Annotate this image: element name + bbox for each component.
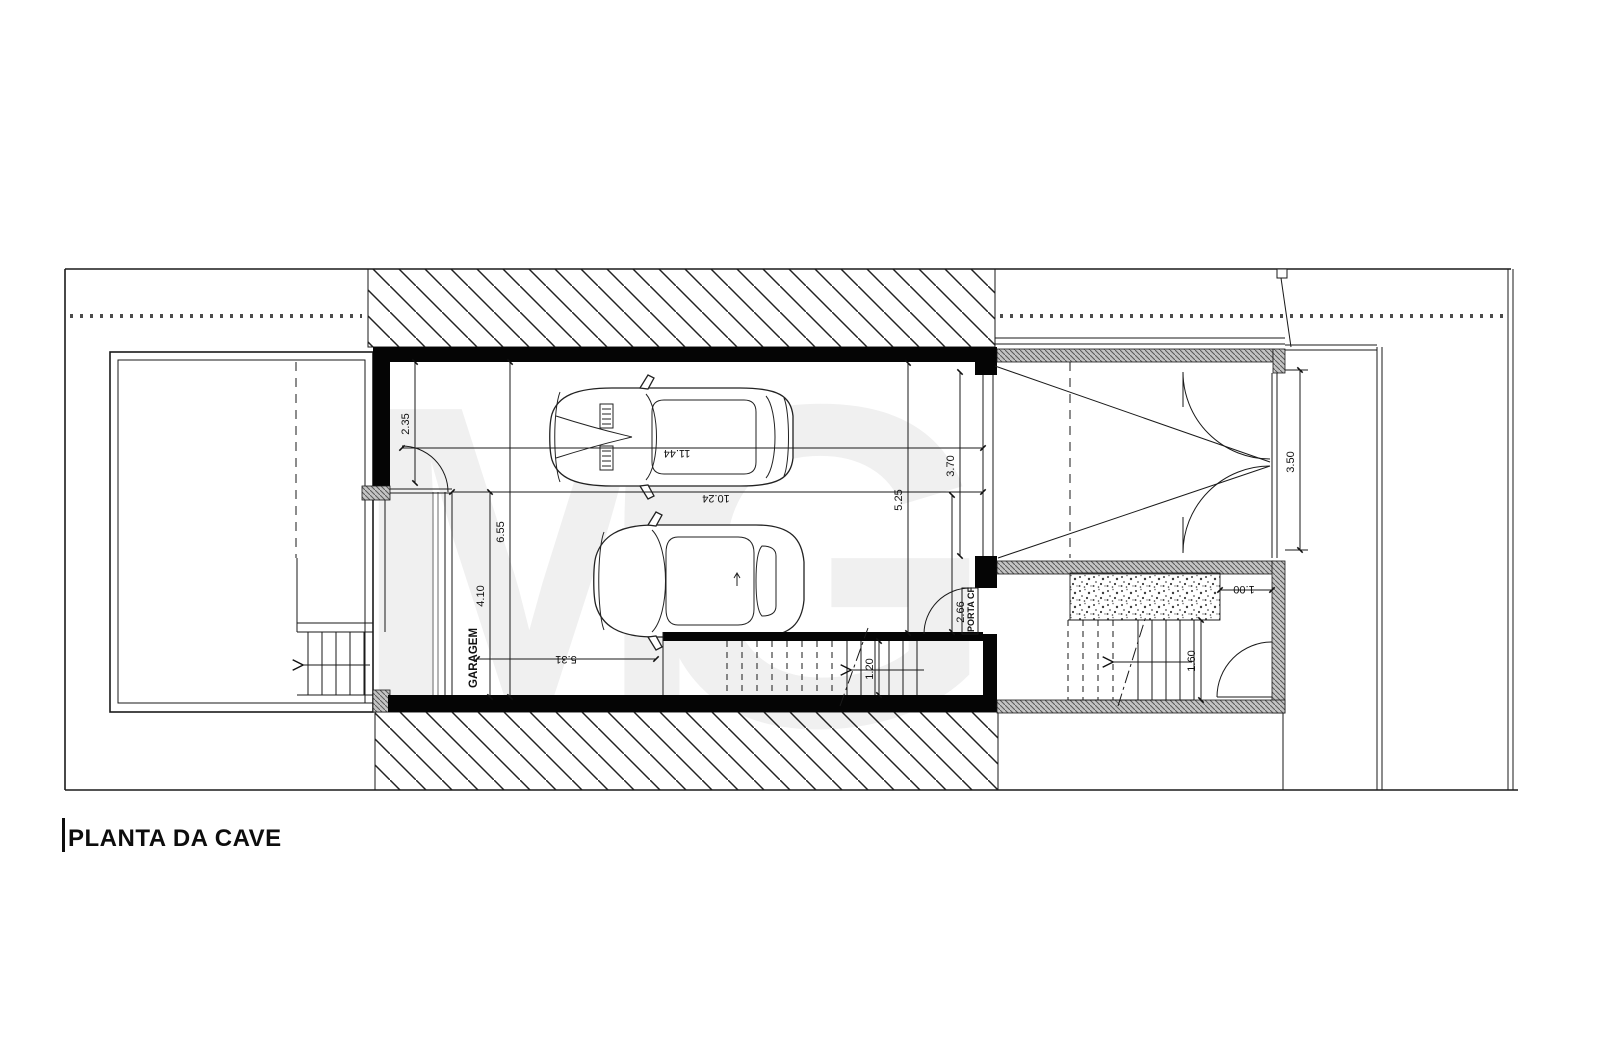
garage-wall-east-mid <box>975 556 997 588</box>
double-gate <box>995 366 1270 558</box>
dim-planter-width: 1.00 <box>1233 583 1254 595</box>
planter-box <box>1070 573 1220 620</box>
dim-stair-width: 1.20 <box>864 658 876 679</box>
garage-wall-west-upper <box>373 347 390 497</box>
entry-court <box>995 338 1285 558</box>
ext-door-swing <box>1217 642 1272 697</box>
dim-west-depth: 6.55 <box>495 521 507 542</box>
title-block: PLANTA DA CAVE <box>62 818 282 852</box>
garage-wall-east-lower <box>983 634 997 695</box>
dim-stair-recess: 2.66 <box>955 601 967 622</box>
car-sedan <box>550 375 793 499</box>
gate-leaf-swing-bottom <box>1183 466 1270 553</box>
garage-label: GARAGEM <box>468 628 480 688</box>
dim-gate-opening: 3.70 <box>945 455 957 476</box>
title-tick <box>62 818 65 852</box>
floor-plan-drawing: M G <box>0 0 1600 1062</box>
court-wall-north <box>997 349 1273 362</box>
gate-leaf-swing-top <box>1183 372 1270 459</box>
dim-inner-length: 10.24 <box>702 492 730 504</box>
ext-stair-wall-east <box>1272 561 1285 713</box>
ext-stair-wall-south <box>997 700 1285 713</box>
earth-hatch-bottom <box>375 712 998 790</box>
yard-left <box>110 352 390 712</box>
earth-hatch-top <box>368 269 995 347</box>
floor-plan-page: M G <box>0 0 1600 1062</box>
page-title: PLANTA DA CAVE <box>68 825 282 852</box>
garage-wall-east-corner <box>975 362 997 375</box>
garage-wall-north <box>373 347 997 362</box>
ext-stair-door <box>1217 642 1272 697</box>
dim-lower-depth: 4.10 <box>475 585 487 606</box>
dim-entry-depth: 3.50 <box>1285 451 1297 472</box>
dim-ext-stair-width: 1.60 <box>1186 650 1198 671</box>
ext-stair-wall-north <box>997 561 1273 574</box>
dim-east-depth: 5.25 <box>893 489 905 510</box>
interior-stair-wall <box>663 632 983 641</box>
garage-wall-south <box>388 695 997 712</box>
dim-recess: 2.35 <box>400 413 412 434</box>
car-hatchback <box>594 512 804 650</box>
fire-door-label: PORTA CF <box>966 587 976 632</box>
dim-overall-length: 11.44 <box>664 447 691 459</box>
dim-bottom-width: 5.31 <box>555 653 576 665</box>
